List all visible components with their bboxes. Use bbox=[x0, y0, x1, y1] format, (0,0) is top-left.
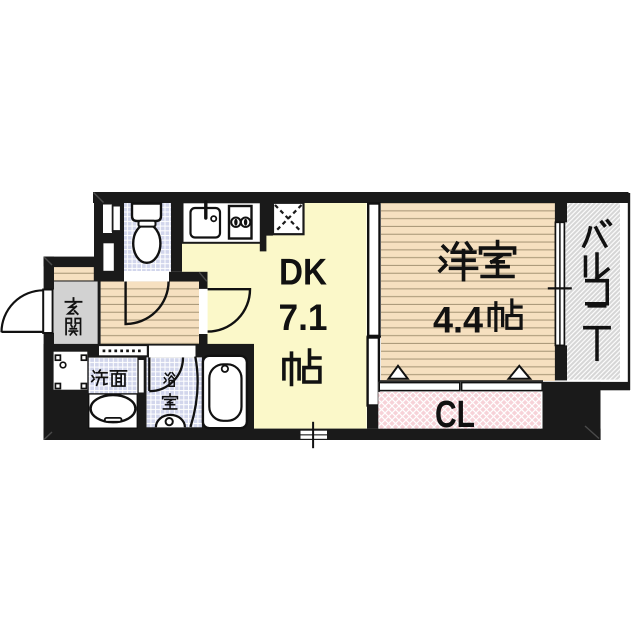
svg-text:7.1: 7.1 bbox=[279, 297, 328, 338]
svg-text:4.4: 4.4 bbox=[433, 299, 483, 340]
svg-text:DK: DK bbox=[279, 252, 327, 293]
svg-text:CL: CL bbox=[435, 394, 475, 436]
